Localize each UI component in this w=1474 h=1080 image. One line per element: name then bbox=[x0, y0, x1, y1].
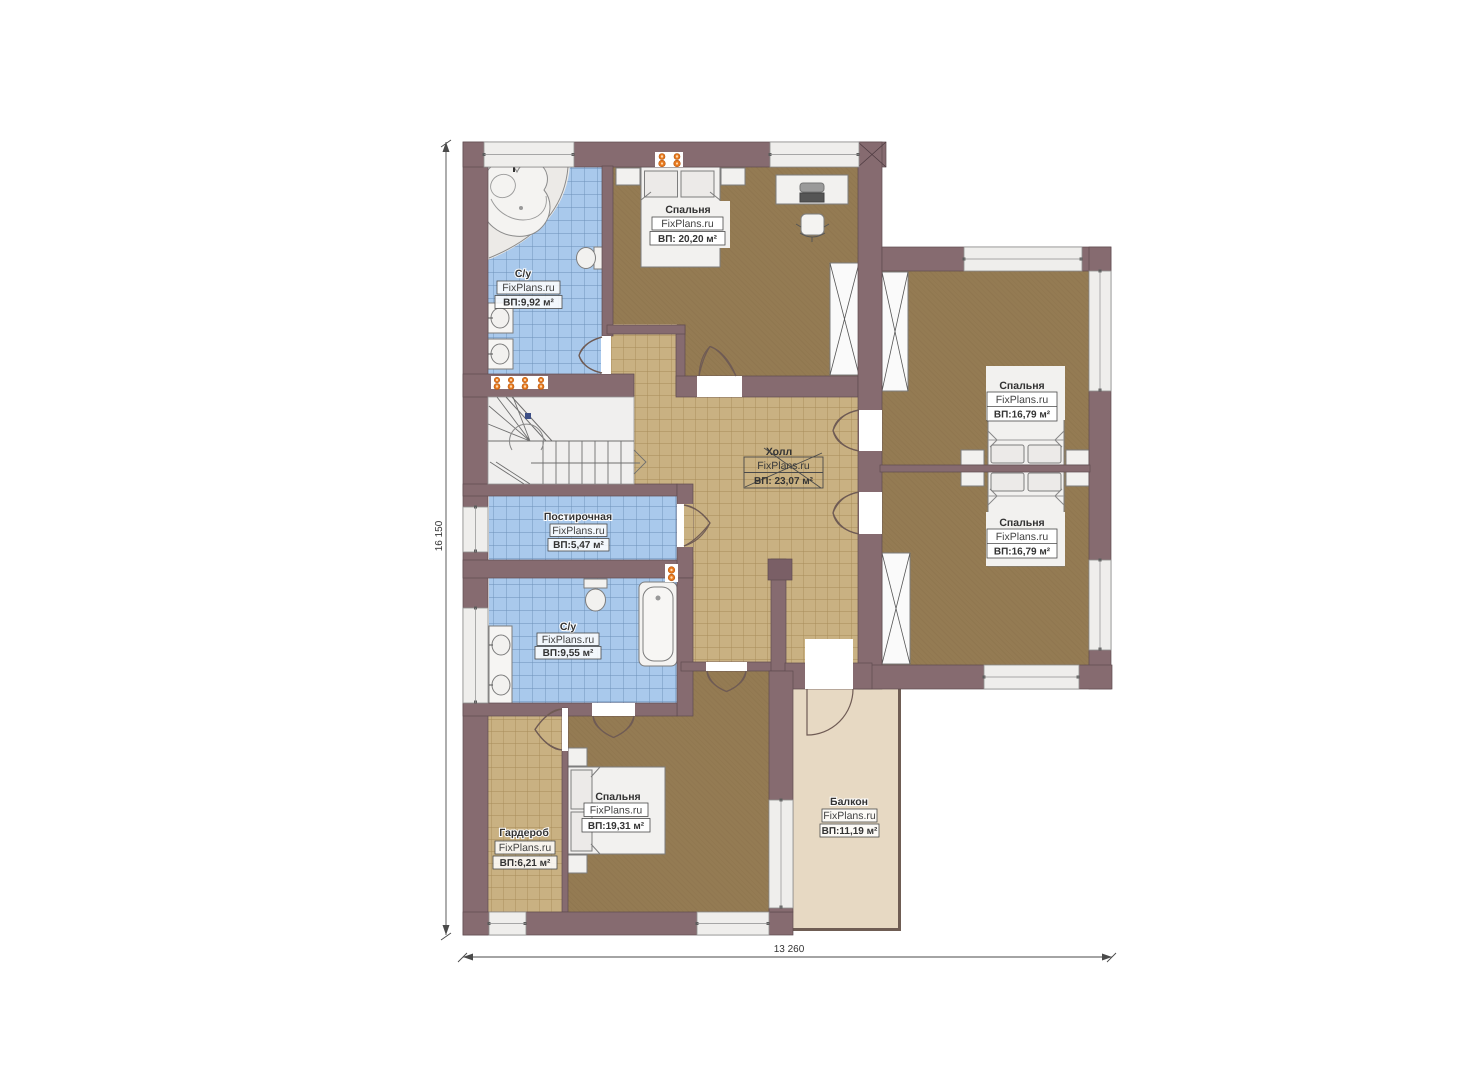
svg-text:ВП: 20,20 м²: ВП: 20,20 м² bbox=[658, 234, 718, 245]
svg-text:ВП: 23,07 м²: ВП: 23,07 м² bbox=[754, 476, 814, 487]
svg-text:ВП:11,19 м²: ВП:11,19 м² bbox=[822, 826, 878, 837]
svg-text:Постирочная: Постирочная bbox=[544, 511, 612, 523]
svg-text:FixPlans.ru: FixPlans.ru bbox=[502, 282, 555, 294]
svg-text:ВП:5,47 м²: ВП:5,47 м² bbox=[553, 540, 604, 551]
svg-text:FixPlans.ru: FixPlans.ru bbox=[996, 531, 1049, 543]
svg-text:FixPlans.ru: FixPlans.ru bbox=[590, 805, 643, 817]
svg-text:FixPlans.ru: FixPlans.ru bbox=[661, 218, 714, 230]
svg-text:Спальня: Спальня bbox=[665, 204, 710, 216]
svg-text:ВП:9,92 м²: ВП:9,92 м² bbox=[503, 298, 554, 309]
svg-text:Балкон: Балкон bbox=[830, 796, 868, 808]
svg-text:ВП:19,31 м²: ВП:19,31 м² bbox=[588, 821, 645, 832]
svg-text:ВП:16,79 м²: ВП:16,79 м² bbox=[994, 547, 1051, 558]
svg-text:FixPlans.ru: FixPlans.ru bbox=[996, 394, 1049, 406]
svg-text:С/у: С/у bbox=[560, 621, 577, 633]
svg-text:FixPlans.ru: FixPlans.ru bbox=[499, 842, 552, 854]
svg-text:16 150: 16 150 bbox=[434, 520, 445, 551]
svg-text:ВП:16,79 м²: ВП:16,79 м² bbox=[994, 410, 1051, 421]
svg-text:FixPlans.ru: FixPlans.ru bbox=[823, 810, 876, 822]
svg-text:FixPlans.ru: FixPlans.ru bbox=[757, 460, 810, 472]
svg-text:FixPlans.ru: FixPlans.ru bbox=[552, 525, 605, 537]
svg-text:FixPlans.ru: FixPlans.ru bbox=[542, 634, 595, 646]
svg-text:13 260: 13 260 bbox=[774, 944, 805, 955]
svg-text:Спальня: Спальня bbox=[595, 791, 640, 803]
svg-text:ВП:6,21 м²: ВП:6,21 м² bbox=[500, 858, 551, 869]
svg-text:Гардероб: Гардероб bbox=[499, 827, 549, 839]
svg-text:Спальня: Спальня bbox=[999, 380, 1044, 392]
svg-text:ВП:9,55 м²: ВП:9,55 м² bbox=[543, 648, 594, 659]
svg-text:Спальня: Спальня bbox=[999, 517, 1044, 529]
svg-text:С/у: С/у bbox=[515, 268, 532, 280]
